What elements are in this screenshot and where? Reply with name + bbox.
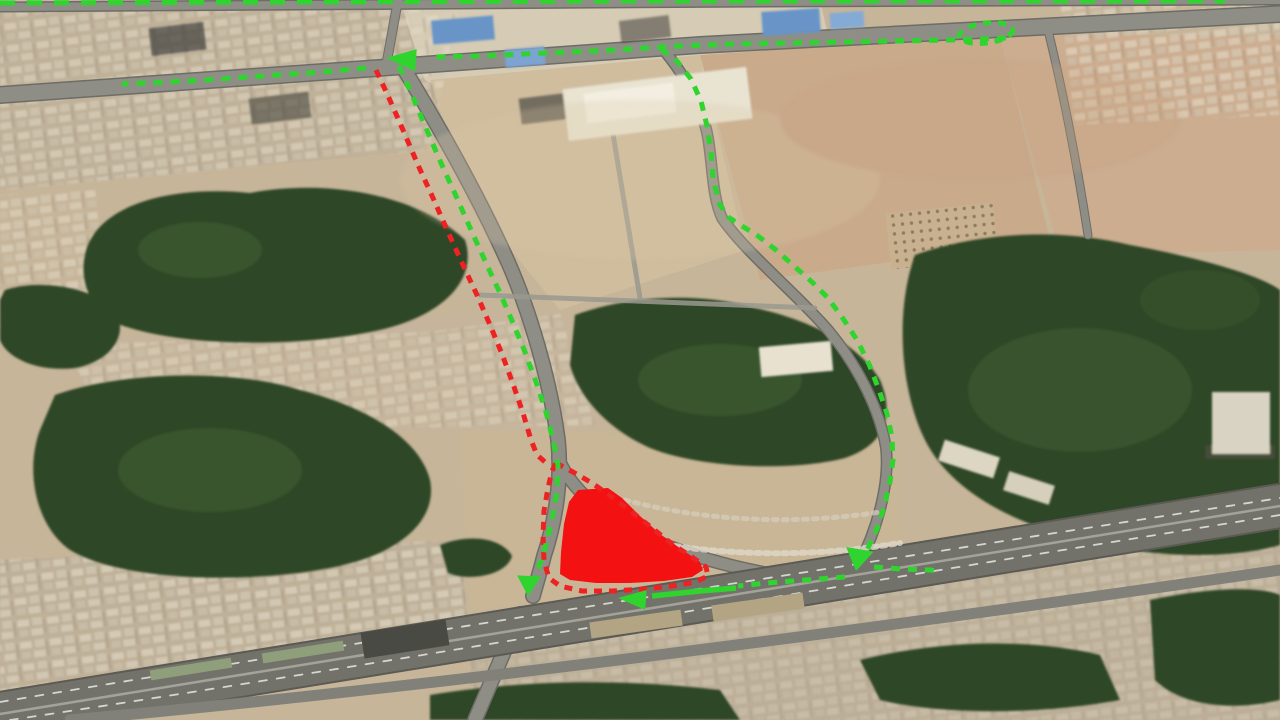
detour-westbound-approach: [432, 38, 1006, 57]
detour-eastern-bypass: [661, 49, 893, 561]
arrow-south-bottom-junction: [516, 575, 541, 596]
satellite-map-view: [0, 0, 1280, 720]
detour-top-edge-route: [0, 1, 1225, 3]
detour-frontage-west: [738, 577, 845, 586]
closed-road-route: [376, 70, 545, 462]
arrow-south-highway-junction: [842, 547, 873, 574]
closed-zone-fill: [560, 488, 703, 583]
detour-highway-east-stub: [874, 567, 938, 571]
detour-westbound-exit: [122, 68, 366, 84]
route-annotations-overlay: [0, 0, 1280, 720]
detour-closed-road-southbound: [399, 66, 558, 581]
u-turn-loop: [958, 20, 1014, 46]
detour-frontage-arrow-shaft: [652, 588, 736, 596]
